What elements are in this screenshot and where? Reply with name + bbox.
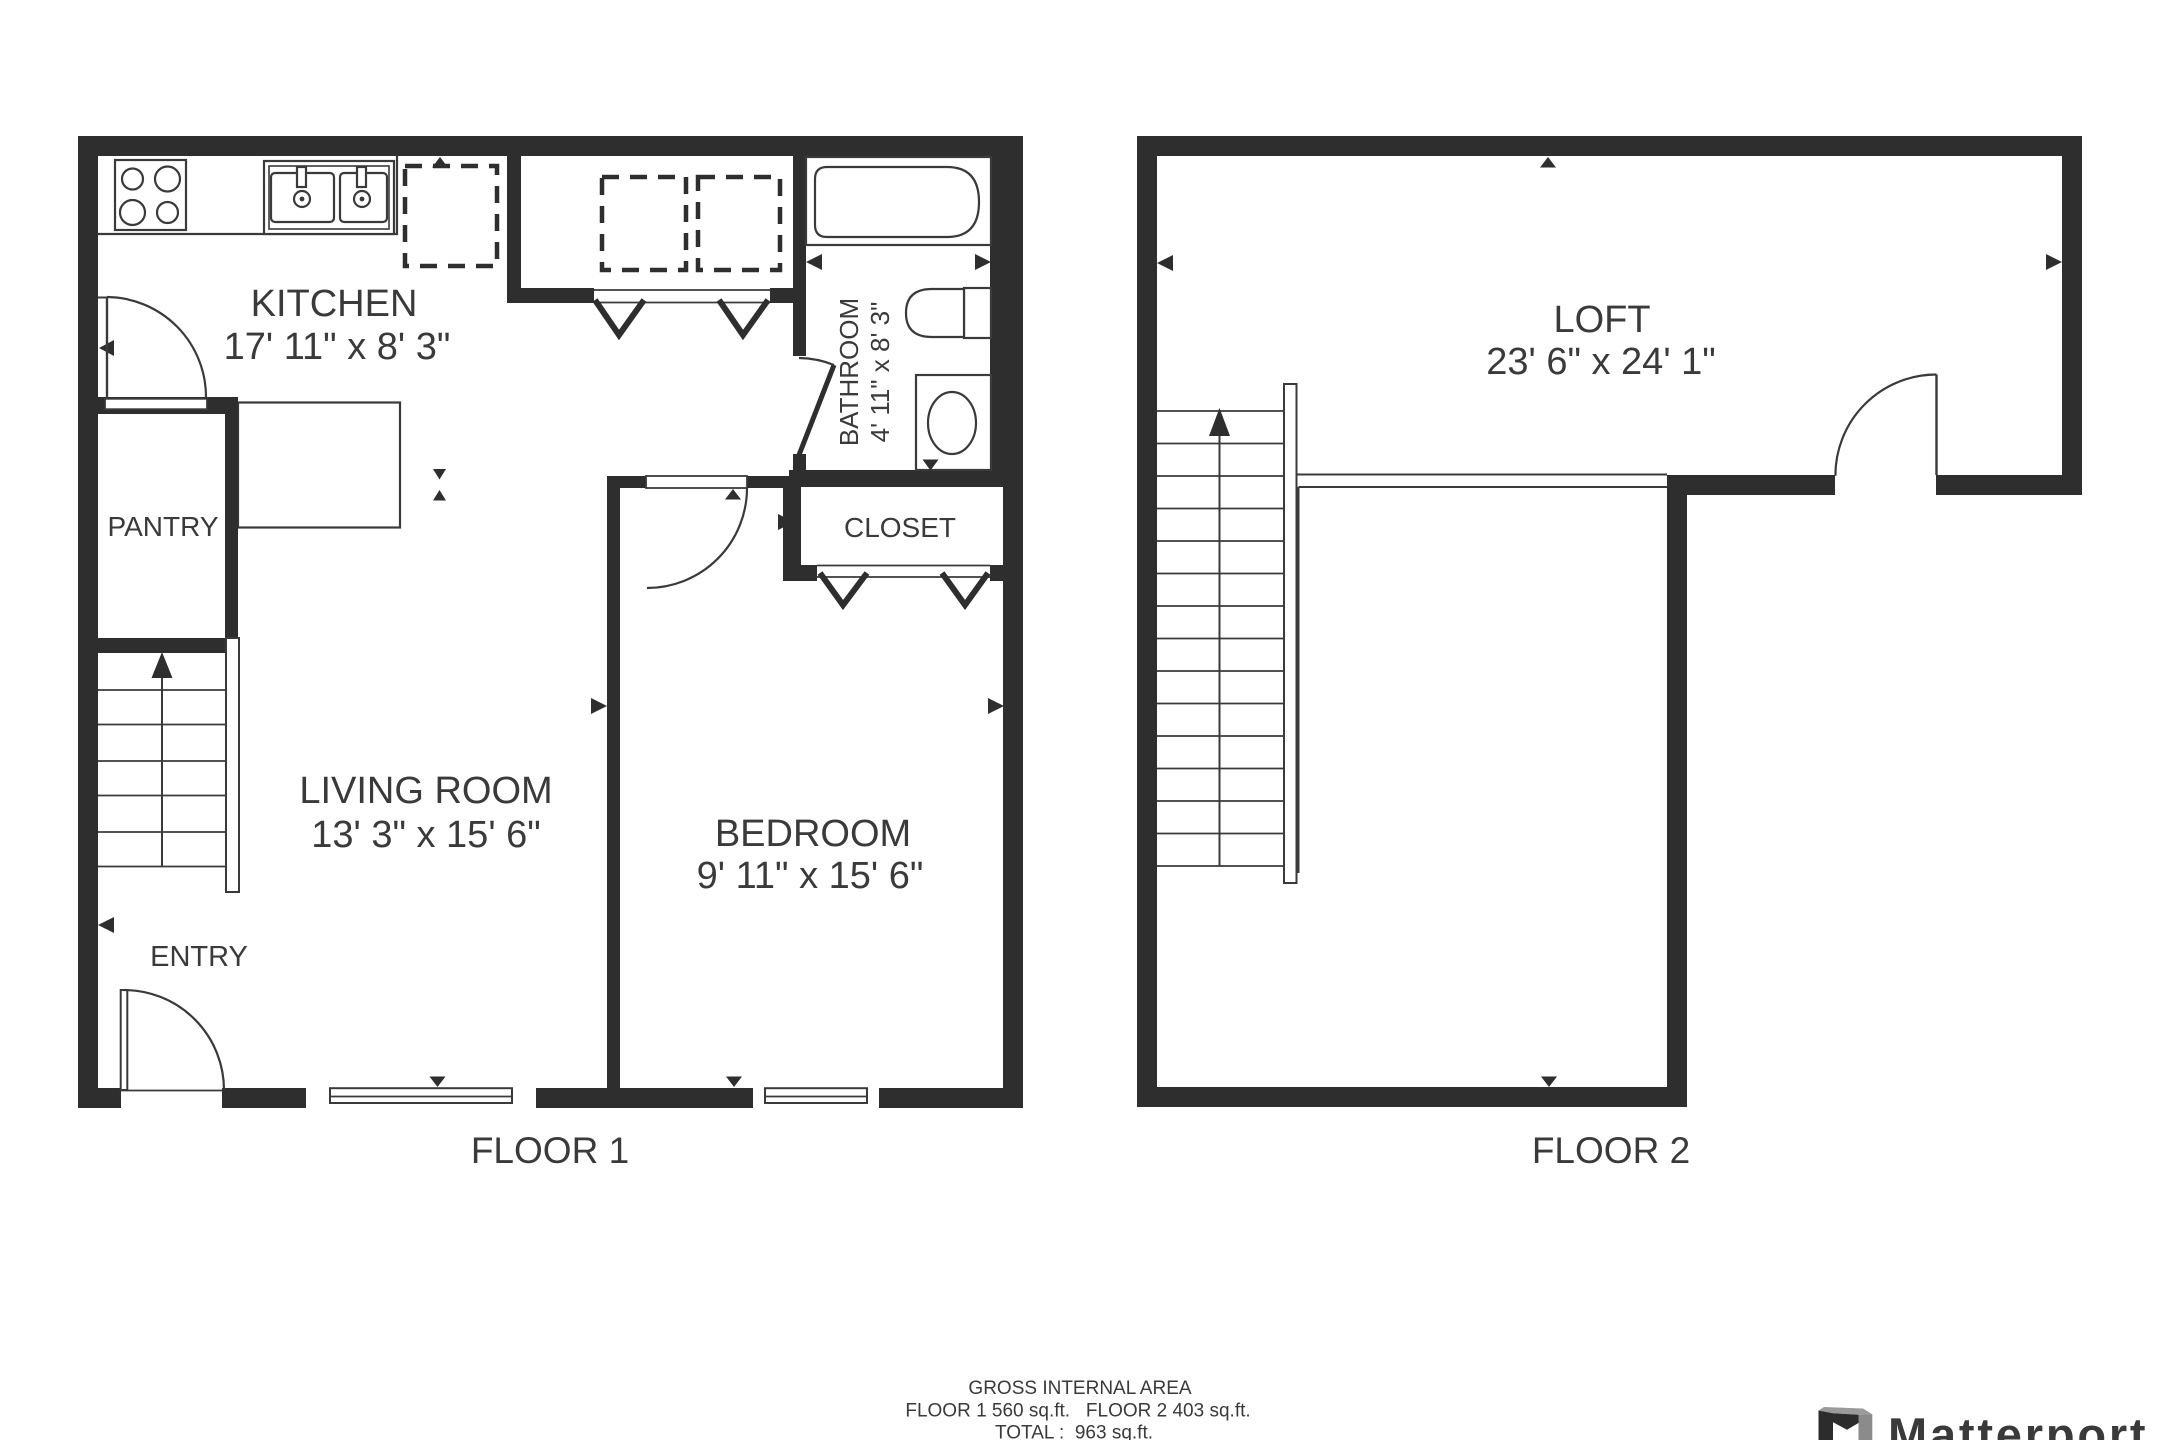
svg-text:9' 11" x 15' 6": 9' 11" x 15' 6" xyxy=(697,855,924,897)
svg-text:4' 11" x 8' 3": 4' 11" x 8' 3" xyxy=(865,302,895,443)
svg-text:TOTAL : 963 sq.ft.: TOTAL : 963 sq.ft. xyxy=(995,1423,1153,1440)
svg-text:FLOOR 1: FLOOR 1 xyxy=(471,1130,629,1171)
svg-text:LOFT: LOFT xyxy=(1553,299,1650,341)
svg-text:KITCHEN: KITCHEN xyxy=(251,283,418,325)
svg-text:23' 6" x 24' 1": 23' 6" x 24' 1" xyxy=(1486,341,1716,383)
svg-text:17' 11" x 8' 3": 17' 11" x 8' 3" xyxy=(224,326,451,368)
svg-text:13' 3" x 15' 6": 13' 3" x 15' 6" xyxy=(311,814,541,856)
svg-text:PANTRY: PANTRY xyxy=(108,511,219,542)
svg-text:BEDROOM: BEDROOM xyxy=(715,813,911,855)
svg-text:CLOSET: CLOSET xyxy=(844,512,956,543)
svg-text:ENTRY: ENTRY xyxy=(150,941,248,973)
svg-text:FLOOR 2: FLOOR 2 xyxy=(1532,1130,1690,1171)
svg-text:Matterport: Matterport xyxy=(1888,1408,2148,1440)
svg-text:GROSS INTERNAL AREA: GROSS INTERNAL AREA xyxy=(968,1378,1191,1399)
svg-text:LIVING ROOM: LIVING ROOM xyxy=(299,770,552,812)
svg-text:BATHROOM: BATHROOM xyxy=(834,298,864,446)
svg-text:FLOOR 1 560 sq.ft. FLOOR 2 4: FLOOR 1 560 sq.ft. FLOOR 2 403 sq.ft. xyxy=(905,1401,1250,1422)
